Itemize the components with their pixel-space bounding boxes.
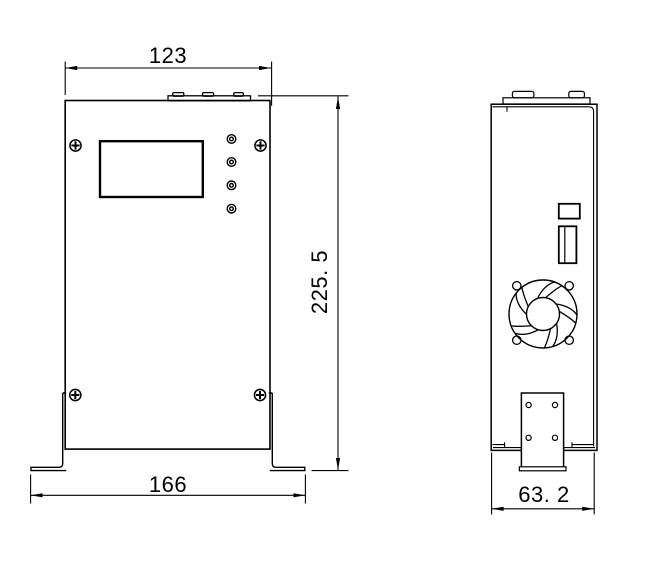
screw-icon — [255, 140, 266, 151]
engineering-drawing: 123 225. 5 166 63. 2 — [0, 0, 663, 575]
arrowhead-right — [259, 66, 271, 70]
dim-front-height — [258, 96, 349, 471]
screw-icon — [70, 140, 81, 151]
terminal-block-side — [503, 91, 590, 104]
dim-label-side-depth: 63. 2 — [518, 482, 569, 508]
screw-icon — [70, 389, 81, 400]
arrowhead-up — [336, 97, 340, 109]
arrowhead-down — [336, 458, 340, 470]
arrowhead-right — [293, 493, 305, 497]
front-view — [31, 93, 305, 471]
arrowhead-left — [65, 66, 77, 70]
led-indicator — [227, 158, 236, 167]
screw-icon — [254, 389, 265, 400]
led-indicator — [227, 204, 236, 213]
mounting-bracket-left — [31, 393, 66, 471]
led-indicator — [227, 135, 236, 144]
connector-port-tall — [559, 226, 577, 263]
dim-label-front-top-width: 123 — [149, 43, 187, 69]
cooling-fan — [509, 280, 579, 351]
led-indicator — [227, 181, 236, 190]
front-body-outline — [65, 101, 270, 450]
arrowhead-left — [492, 507, 504, 511]
mounting-plate-side — [519, 393, 566, 471]
arrowhead-right — [582, 507, 594, 511]
arrowhead-left — [31, 493, 43, 497]
display-screen — [100, 141, 203, 197]
mounting-bracket-right — [269, 393, 305, 471]
connector-port-small — [559, 204, 580, 219]
side-view — [491, 91, 597, 470]
dim-label-front-height: 225. 5 — [307, 250, 333, 314]
dim-label-front-bottom-width: 166 — [149, 472, 187, 498]
terminal-block-front — [168, 93, 251, 101]
